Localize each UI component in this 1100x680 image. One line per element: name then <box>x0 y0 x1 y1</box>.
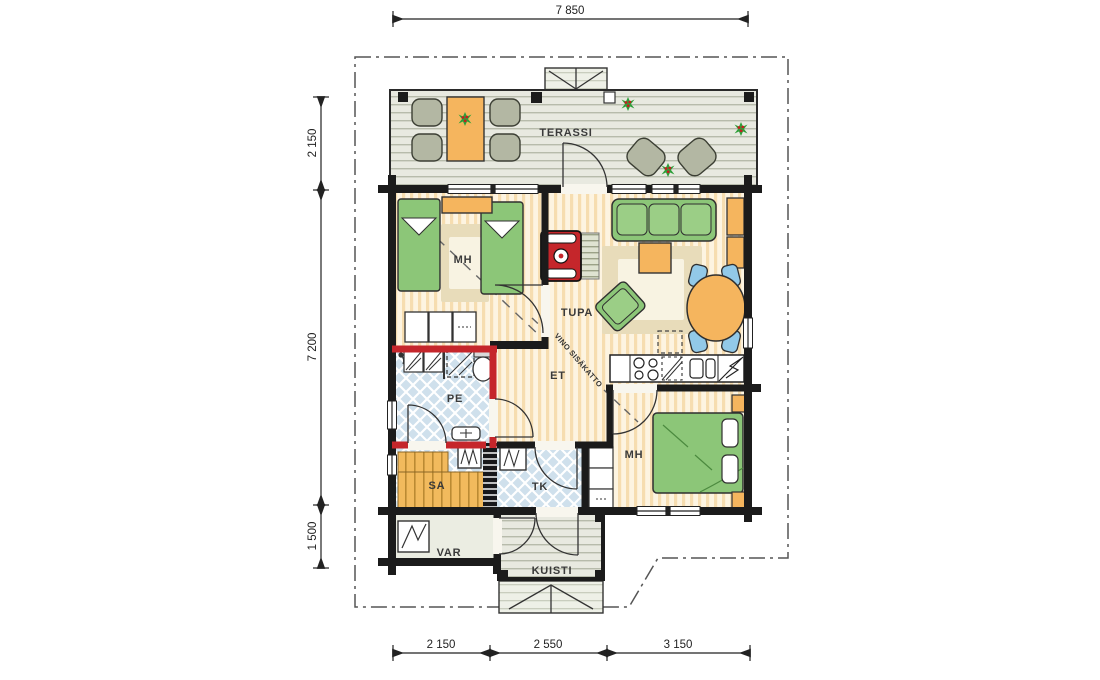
room-label-utility: TK <box>532 481 548 493</box>
shelf-unit <box>727 237 744 268</box>
dresser <box>442 197 492 213</box>
room-label-bathroom: PE <box>447 393 463 405</box>
chimney-flue-wall <box>483 443 497 511</box>
wardrobe <box>453 312 476 342</box>
dimension-bottom: 2 150 2 550 3 150 <box>393 639 750 661</box>
shelf-unit <box>727 198 744 235</box>
storage-equipment <box>398 521 429 552</box>
room-label-sauna: SA <box>429 480 446 492</box>
room-label-terassi: TERASSI <box>539 127 592 139</box>
dim-top-value: 7 850 <box>556 5 585 17</box>
dimension-top: 7 850 <box>393 5 748 27</box>
wardrobe <box>429 312 452 342</box>
floor-plan-page: TERASSI MH TUPA ET PE SA TK MH VAR KUIST… <box>0 0 1100 680</box>
dining-set <box>687 263 745 353</box>
nightstand <box>732 395 745 412</box>
dim-left-bottom-value: 1 500 <box>307 522 319 551</box>
dim-bottom-middle-value: 2 550 <box>534 639 563 651</box>
room-label-porch: KUISTI <box>532 565 573 577</box>
wardrobe <box>589 468 613 489</box>
dim-left-middle-value: 7 200 <box>307 333 319 362</box>
porch-steps <box>499 581 603 613</box>
fireplace <box>541 231 599 281</box>
dim-bottom-left-value: 2 150 <box>427 639 456 651</box>
dim-bottom-right-value: 3 150 <box>664 639 693 651</box>
single-bed <box>481 202 523 294</box>
room-label-hall: ET <box>550 370 566 382</box>
room-label-storage: VAR <box>437 547 462 559</box>
sink <box>690 359 715 378</box>
nightstand <box>732 492 745 508</box>
sauna-heater <box>458 446 481 468</box>
room-label-bedroom1: MH <box>454 254 473 266</box>
floor-plan-drawing: TERASSI MH TUPA ET PE SA TK MH VAR KUIST… <box>0 0 1100 680</box>
wardrobe <box>405 312 428 342</box>
room-label-livingroom: TUPA <box>561 307 593 319</box>
bathroom-sink <box>452 427 480 440</box>
utility-appliance <box>500 446 526 470</box>
dining-table <box>687 275 745 341</box>
dimension-left: 2 150 7 200 1 500 <box>307 97 329 568</box>
room-label-bedroom2: MH <box>625 449 644 461</box>
coffee-table <box>639 243 671 273</box>
dim-left-top-value: 2 150 <box>307 129 319 158</box>
wardrobe <box>589 447 613 468</box>
pillow <box>722 419 738 447</box>
single-bed <box>398 199 440 291</box>
pillow <box>722 455 738 483</box>
